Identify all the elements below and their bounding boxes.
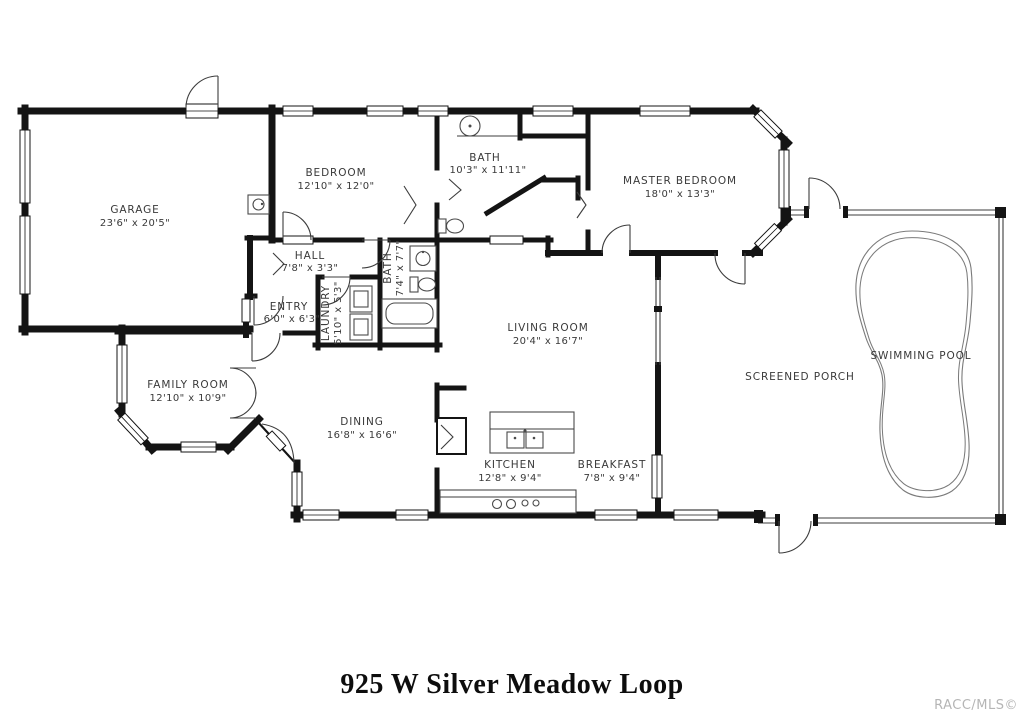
porch-top-door — [809, 178, 840, 209]
family-room-double-doors — [230, 368, 256, 418]
hall-bath-toilet — [410, 277, 436, 292]
screened-porch-walls — [754, 206, 1006, 526]
room-dims-bedroom: 12'10" x 12'0" — [297, 181, 374, 192]
kitchen-island — [490, 412, 574, 453]
garage-top-door — [186, 76, 218, 108]
room-dims-laundry: 5'10" x 5'3" — [333, 281, 344, 345]
room-label-dining: DINING — [340, 416, 384, 428]
master-bedroom-door — [602, 225, 630, 253]
room-label-bedroom: BEDROOM — [305, 167, 366, 179]
room-dims-entry: 6'0" x 6'3" — [264, 314, 321, 325]
dryer — [350, 314, 372, 340]
floor-plan-svg: GARAGE 23'6" x 20'5" BEDROOM 12'10" x 12… — [0, 0, 1024, 723]
bedroom-closet-chevron — [404, 186, 416, 224]
floor-plan-page: GARAGE 23'6" x 20'5" BEDROOM 12'10" x 12… — [0, 0, 1024, 723]
living-porch-door — [715, 253, 745, 284]
sliding-door — [654, 277, 662, 365]
watermark: RACC/MLS© — [934, 698, 1018, 713]
room-dims-garage: 23'6" x 20'5" — [100, 218, 170, 229]
page-title: 925 W Silver Meadow Loop — [0, 669, 1024, 701]
room-dims-bath2: 7'4" x 7'7" — [395, 240, 406, 297]
room-label-bath: BATH — [469, 152, 500, 164]
kitchen-counter-range — [440, 490, 576, 513]
bath-opening-chevron — [449, 179, 461, 200]
room-dims-bath: 10'3" x 11'11" — [449, 165, 526, 176]
window-garage-door — [186, 104, 218, 118]
room-dims-hall: 7'8" x 3'3" — [282, 263, 339, 274]
room-dims-breakfast: 7'8" x 9'4" — [584, 473, 641, 484]
room-label-family-room: FAMILY ROOM — [147, 379, 228, 391]
room-label-bath2: BATH — [382, 252, 394, 283]
room-dims-master-bedroom: 18'0" x 13'3" — [645, 189, 715, 200]
room-dims-kitchen: 12'8" x 9'4" — [478, 473, 542, 484]
master-bath-toilet — [438, 219, 464, 233]
room-dims-living-room: 20'4" x 16'7" — [513, 336, 583, 347]
hall-bath-tub — [382, 299, 437, 328]
room-label-swimming-pool: SWIMMING POOL — [870, 350, 971, 362]
room-label-kitchen: KITCHEN — [484, 459, 536, 471]
room-label-living-room: LIVING ROOM — [507, 322, 588, 334]
porch-bottom-door — [779, 521, 811, 553]
room-label-master-bedroom: MASTER BEDROOM — [623, 175, 737, 187]
room-label-laundry: LAUNDRY — [320, 285, 332, 341]
room-label-garage: GARAGE — [110, 204, 159, 216]
swimming-pool-shape — [856, 231, 972, 497]
room-label-hall: HALL — [295, 250, 325, 262]
room-label-breakfast: BREAKFAST — [578, 459, 647, 471]
garage-utility-sink — [248, 195, 269, 214]
washer — [350, 286, 372, 312]
room-dims-dining: 16'8" x 16'6" — [327, 430, 397, 441]
room-label-entry: ENTRY — [270, 301, 308, 313]
hall-bath-sink — [410, 246, 436, 271]
room-label-screened-porch: SCREENED PORCH — [745, 371, 855, 383]
room-dims-family-room: 12'10" x 10'9" — [149, 393, 226, 404]
master-bath-shower — [457, 116, 518, 136]
entry-dining-door — [252, 333, 280, 361]
